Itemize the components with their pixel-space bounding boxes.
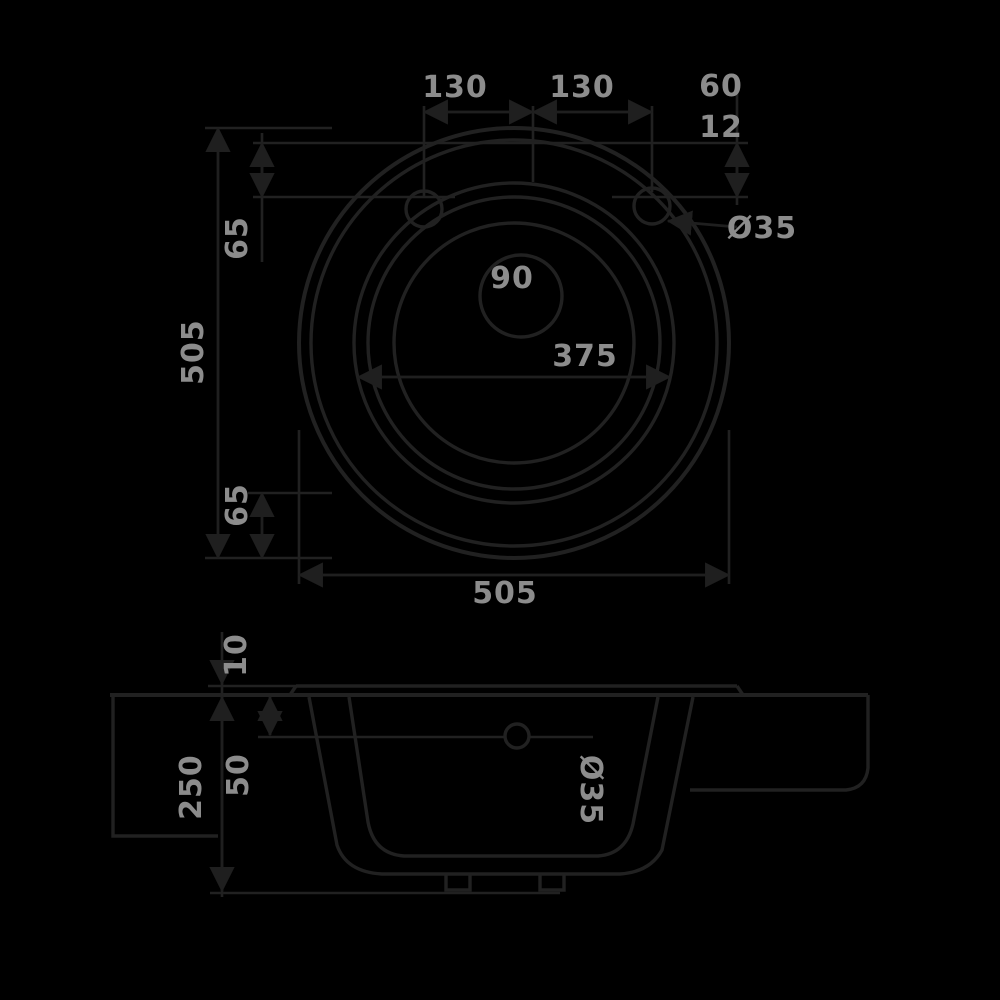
foot-left <box>446 874 470 890</box>
section-view: 10 250 50 Ø35 <box>110 632 868 897</box>
overflow-hole-circle <box>505 724 529 748</box>
dim-drain-label: 90 <box>490 261 534 296</box>
dim-rim-offset-bottom-label: 65 <box>220 483 255 527</box>
dim-total-height-label: 250 <box>174 754 209 820</box>
dim-rim-offset-top-label: 65 <box>220 216 255 260</box>
drawing-canvas: 130 130 60 12 Ø35 90 375 505 65 65 505 <box>0 0 1000 1000</box>
dim-overall-width-label: 505 <box>472 576 538 611</box>
dim-edge-gap-upper-label: 60 <box>699 69 743 104</box>
dim-overall-height-label: 505 <box>176 319 211 385</box>
dim-hole-spacing-right-label: 130 <box>549 70 615 105</box>
dim-hole-spacing-left-label: 130 <box>422 70 488 105</box>
bowl-outer-profile <box>309 697 693 874</box>
foot-right <box>540 874 564 890</box>
counter-right-edge <box>690 695 868 790</box>
sink-technical-drawing: 130 130 60 12 Ø35 90 375 505 65 65 505 <box>0 0 1000 1000</box>
dim-faucet-hole-label: Ø35 <box>727 211 797 246</box>
inner-rim-circle <box>311 140 717 546</box>
dim-rim-height-label: 10 <box>219 633 254 677</box>
dim-overflow-depth-label: 50 <box>221 753 256 797</box>
bowl-top-circle <box>354 183 674 503</box>
dim-bowl-diameter-label: 375 <box>552 339 618 374</box>
dim-edge-gap-lower-label: 12 <box>699 110 743 145</box>
bowl-inner-profile <box>349 697 658 856</box>
plan-view: 130 130 60 12 Ø35 90 375 505 65 65 505 <box>176 69 797 611</box>
dim-overflow-hole-label: Ø35 <box>573 755 608 825</box>
